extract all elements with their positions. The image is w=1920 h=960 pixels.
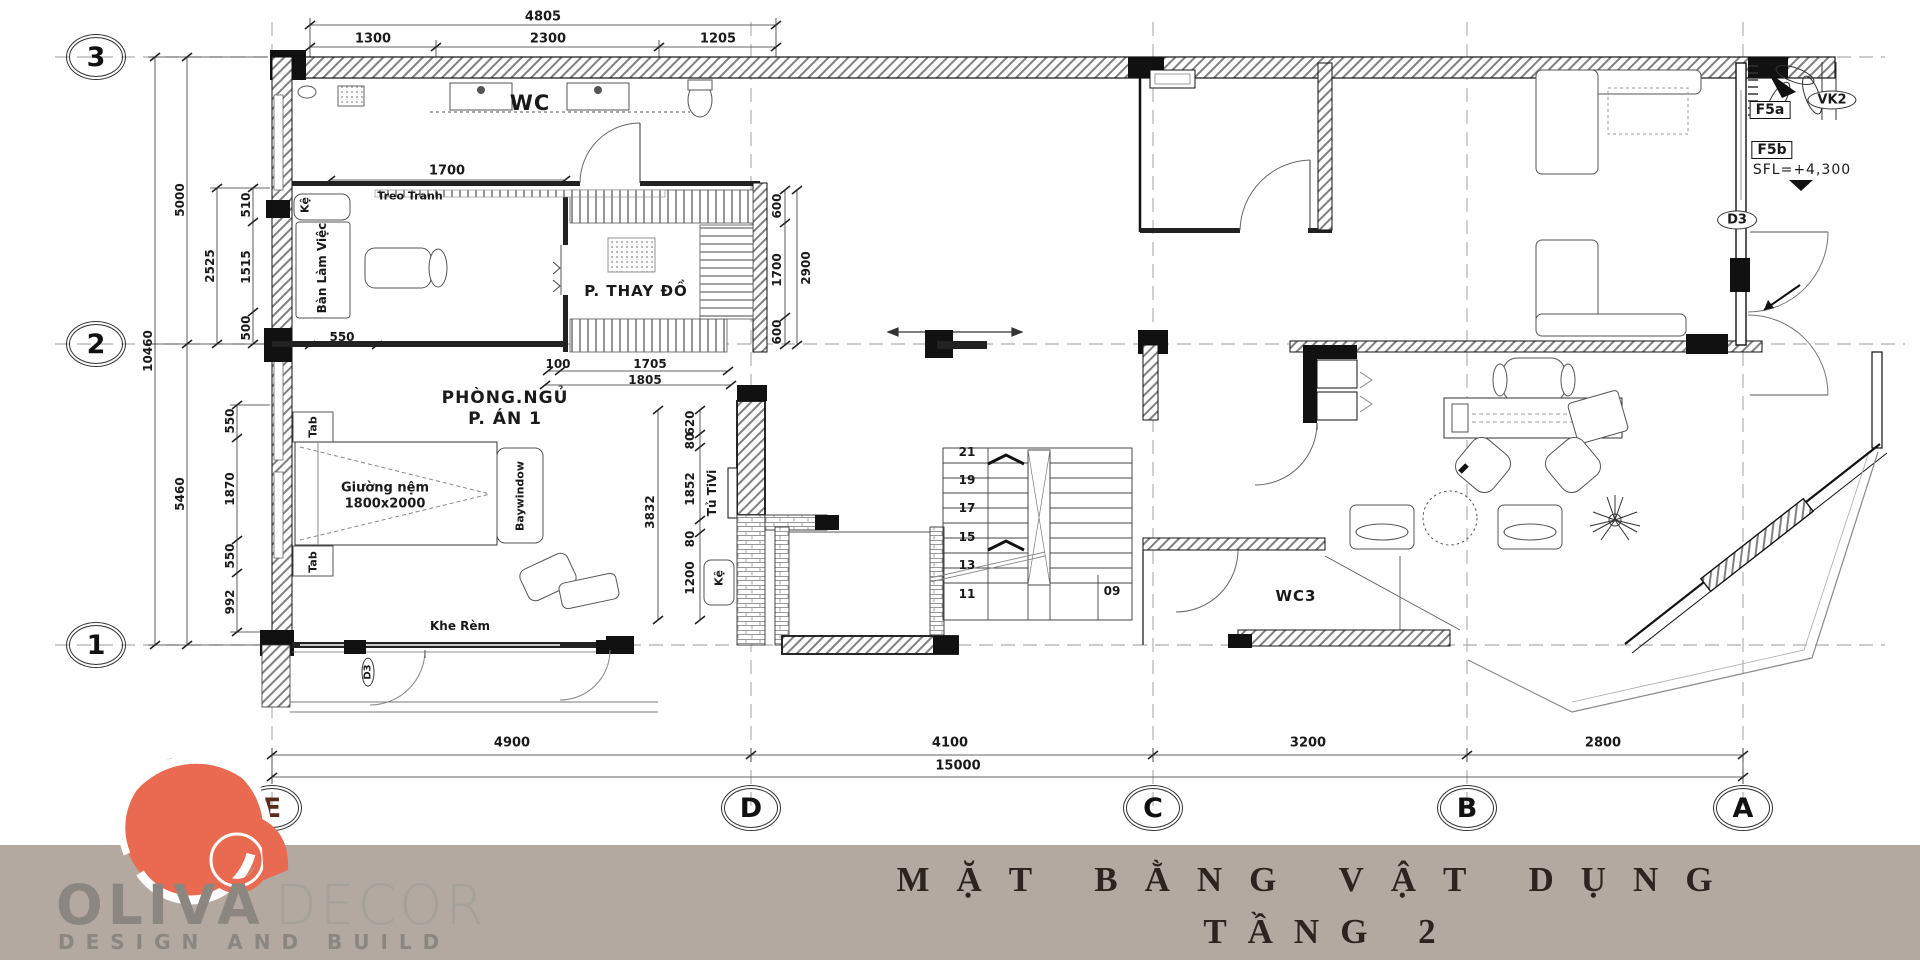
room-label-bedroom-plan: P. ÁN 1	[468, 409, 542, 429]
dim-dress-600a: 600	[770, 193, 784, 218]
dim-left-510: 510	[239, 192, 253, 217]
dim-dress-100: 100	[545, 357, 570, 371]
label-ke-tv: Kệ	[713, 570, 726, 586]
dim-left-500: 500	[239, 315, 253, 340]
stair-num-15: 15	[959, 530, 976, 544]
dim-left-550a: 550	[223, 408, 237, 433]
walls	[260, 50, 1887, 712]
grid-row-1: 1	[69, 625, 123, 665]
room-label-dressing: P. THAY ĐỒ	[584, 282, 688, 300]
grid-col-a: A	[1716, 788, 1770, 828]
label-tu-tivi: Tủ TiVi	[705, 470, 719, 516]
dim-left-10460: 10460	[141, 330, 155, 372]
floor-plan-canvas: 3 2 1 E D C B A 4805 1300 2300 1205 5000…	[0, 0, 1920, 960]
room-label-bedroom: PHÒNG.NGỦ	[442, 388, 569, 408]
logo-brand: OLIVADECOR	[56, 873, 487, 937]
dim-top-3: 1205	[700, 32, 736, 47]
dim-left-5460: 5460	[173, 477, 187, 510]
label-f5a: F5a	[1750, 101, 1791, 119]
label-tab-top: Tab	[307, 416, 320, 437]
dim-dress-1700: 1700	[770, 253, 784, 286]
dim-left-550b: 550	[223, 543, 237, 568]
dim-work-550: 550	[329, 330, 354, 344]
dim-work-1700: 1700	[429, 164, 465, 179]
logo-tagline: DESIGN AND BUILD	[58, 930, 450, 954]
logo-brand-bold: OLIVA	[56, 873, 265, 937]
dim-mid-1200: 1200	[683, 561, 697, 594]
dim-bottom-4900: 4900	[494, 736, 530, 751]
stair-num-09: 09	[1104, 584, 1121, 598]
room-label-wc: WC	[510, 91, 551, 115]
grid-col-c: C	[1126, 788, 1180, 828]
label-f5b: F5b	[1751, 141, 1792, 159]
label-khe-rem: Khe Rèm	[430, 619, 490, 633]
label-d3-door: D3	[362, 657, 375, 686]
dim-bottom-4100: 4100	[932, 736, 968, 751]
dim-top-total: 4805	[525, 10, 561, 25]
label-ke: Kệ	[299, 197, 312, 213]
stair-num-13: 13	[959, 558, 976, 572]
dim-dress-2900: 2900	[799, 251, 813, 284]
dim-mid-80a: 80	[683, 433, 697, 450]
dim-dress-1705: 1705	[633, 357, 666, 371]
stair-num-17: 17	[959, 501, 976, 515]
room-label-wc3: WC3	[1276, 587, 1317, 605]
label-tab-bottom: Tab	[307, 551, 320, 572]
label-sfl: SFL=+4,300	[1753, 162, 1851, 178]
dim-left-1515: 1515	[239, 250, 253, 283]
label-bed-size: 1800x2000	[345, 497, 426, 512]
dim-left-2525: 2525	[203, 249, 217, 282]
dim-mid-80b: 80	[683, 531, 697, 548]
label-baywindow: Baywindow	[514, 461, 527, 531]
label-bed-name: Giường nệm	[341, 481, 429, 496]
stair-num-21: 21	[959, 445, 976, 459]
label-d3: D3	[1717, 211, 1757, 230]
grid-col-d: D	[724, 788, 778, 828]
dim-left-992: 992	[223, 589, 237, 614]
label-ban-lam-viec: Bàn Làm Việc	[315, 223, 329, 314]
direction-arrows	[888, 328, 1022, 336]
logo-brand-light: DECOR	[275, 873, 487, 937]
label-vk2: VK2	[1807, 91, 1856, 110]
stair-num-11: 11	[959, 587, 976, 601]
grid-row-2: 2	[69, 324, 123, 364]
dim-dress-1805: 1805	[628, 373, 661, 387]
label-treo-tranh: Treo Tranh	[377, 190, 442, 203]
dim-left-1870: 1870	[223, 472, 237, 505]
dim-mid-1852: 1852	[683, 472, 697, 505]
drawing-title-line1: MẶT BẰNG VẬT DỤNG	[896, 860, 1739, 900]
stair-num-19: 19	[959, 473, 976, 487]
furniture	[293, 70, 1701, 610]
dim-bottom-3200: 3200	[1290, 736, 1326, 751]
dim-bottom-15000: 15000	[935, 759, 980, 774]
grid-col-b: B	[1440, 788, 1494, 828]
dim-top-2: 2300	[530, 32, 566, 47]
grid-row-3: 3	[69, 37, 123, 77]
dim-left-5000: 5000	[173, 183, 187, 216]
drawing-title-line2: TẦNG 2	[1203, 912, 1456, 952]
dim-bottom-2800: 2800	[1585, 736, 1621, 751]
dim-dress-600b: 600	[770, 319, 784, 344]
dim-mid-3832: 3832	[643, 495, 657, 528]
dim-top-1: 1300	[355, 32, 391, 47]
